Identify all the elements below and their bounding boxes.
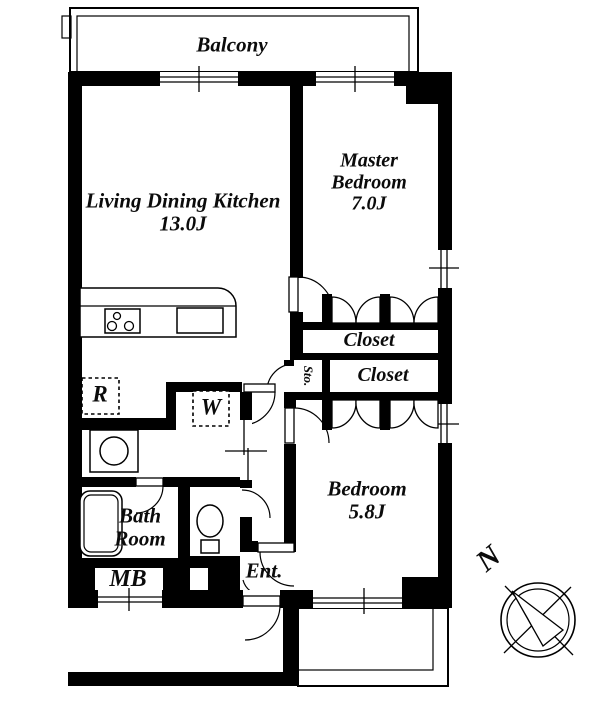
closet-upper-label: Closet: [343, 330, 394, 352]
floor-plan-drawing: [0, 0, 611, 705]
bathroom-name-1: Bath: [114, 504, 165, 527]
window-master-side: [429, 250, 459, 288]
window-ldk-balcony: [160, 66, 238, 92]
washroom-sliding-door: [225, 420, 267, 480]
window-bedroom-bottom: [313, 588, 402, 614]
right-wall: [438, 86, 452, 250]
ldk-name: Living Dining Kitchen: [86, 189, 281, 212]
bedroom-size: 5.8J: [327, 500, 406, 523]
kitchen-counter: [80, 288, 236, 337]
master-bedroom-label: Master Bedroom 7.0J: [331, 151, 407, 216]
window-master-balcony: [316, 66, 394, 92]
master-bedroom-size: 7.0J: [331, 194, 407, 216]
toilet-icon: [197, 505, 223, 553]
service-area-outline: [298, 608, 448, 686]
refrigerator-label: R: [92, 383, 107, 408]
bedroom-label: Bedroom 5.8J: [327, 477, 406, 522]
balcony-label: Balcony: [196, 34, 267, 57]
stove-icon: [105, 309, 140, 333]
master-bedroom-name-2: Bedroom: [331, 172, 407, 194]
compass-icon: [501, 583, 575, 657]
ldk-size: 13.0J: [86, 212, 281, 235]
floor-plan: Balcony Living Dining Kitchen 13.0J Mast…: [0, 0, 611, 705]
corridor-wall: [68, 672, 298, 686]
washbasin-icon: [90, 430, 138, 472]
washer-label: W: [201, 396, 221, 421]
entrance-door: [243, 590, 280, 640]
bedroom-name: Bedroom: [327, 477, 406, 500]
bathroom-name-2: Room: [114, 527, 165, 550]
bathroom-label: Bath Room: [114, 504, 165, 549]
sink-icon: [177, 308, 223, 333]
meter-box-label: MB: [109, 567, 146, 593]
toilet-door: [242, 490, 270, 518]
closet-lower-label: Closet: [357, 365, 408, 387]
ldk-label: Living Dining Kitchen 13.0J: [86, 189, 281, 234]
storage-label: Sto.: [301, 366, 315, 387]
entrance-label: Ent.: [246, 560, 283, 583]
top-wall: [68, 72, 160, 86]
master-bedroom-name-1: Master: [331, 151, 407, 173]
